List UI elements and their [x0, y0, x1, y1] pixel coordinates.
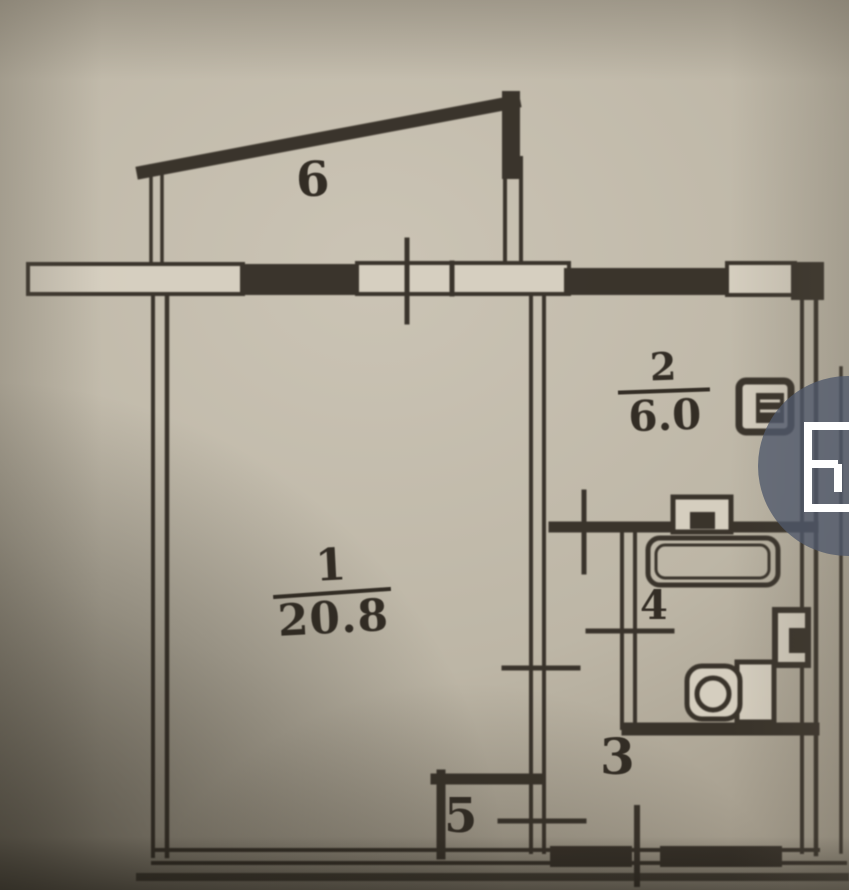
living-hall-wall [500, 294, 584, 852]
exterior-bottom-wall [140, 808, 849, 884]
room-label-hallway: 3 [600, 732, 635, 782]
bathtub [648, 538, 778, 585]
kitchen-sink [673, 497, 731, 532]
living-room-area: 20.8 [277, 594, 390, 644]
living-room-number: 1 [314, 543, 347, 589]
bathroom-vent-shaft [775, 610, 808, 665]
floorplan-photo: 6 1 20.8 2 6.0 4 3 5 [0, 0, 849, 890]
floorplan-icon [804, 420, 849, 516]
toilet [687, 662, 774, 722]
room-label-kitchen: 2 6.0 [610, 346, 717, 439]
kitchen-number: 2 [649, 348, 677, 387]
left-wall [153, 296, 167, 856]
room-label-bathroom: 4 [640, 586, 668, 626]
room-label-living-room: 1 20.8 [264, 541, 401, 645]
kitchen-area: 6.0 [628, 394, 702, 439]
room-label-balcony: 6 [295, 155, 331, 205]
floorplan-drawing [0, 0, 849, 890]
exterior-top-wall [28, 240, 824, 322]
room-label-closet: 5 [444, 792, 477, 840]
balcony-walls [143, 100, 521, 264]
